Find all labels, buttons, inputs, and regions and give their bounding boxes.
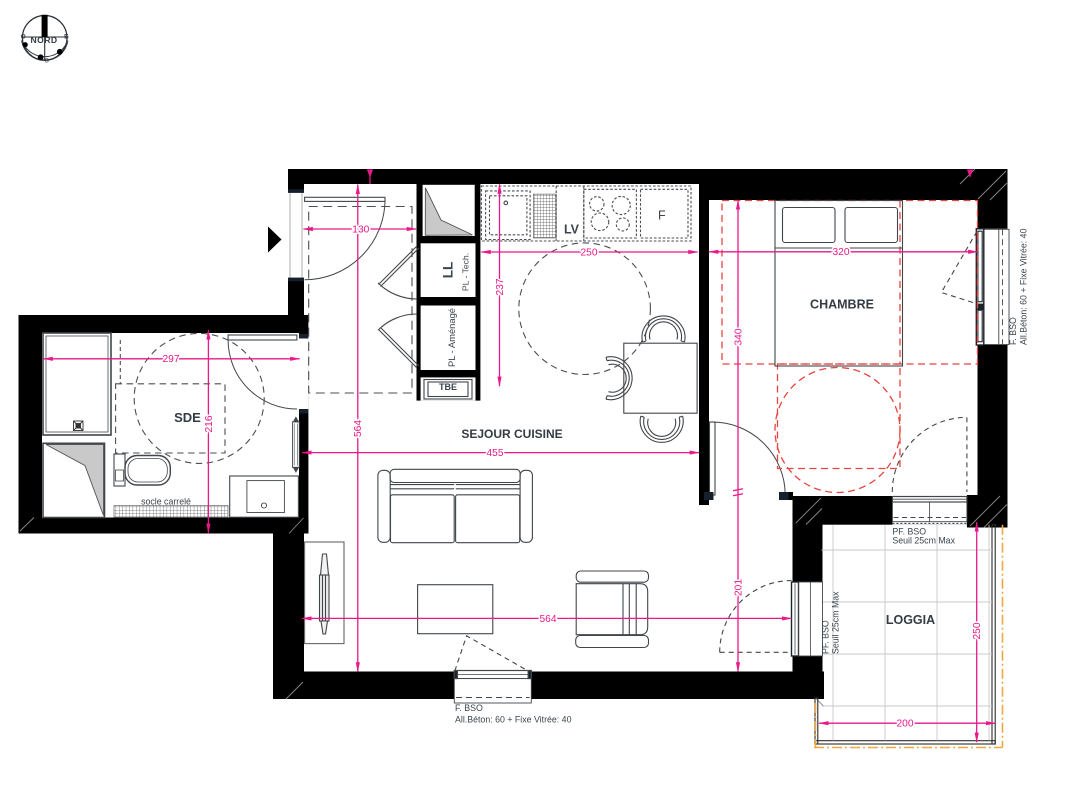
svg-text:250: 250 xyxy=(972,622,983,639)
svg-text:LL: LL xyxy=(441,262,456,279)
svg-text:S: S xyxy=(45,58,50,65)
svg-text:237: 237 xyxy=(495,278,506,295)
svg-text:564: 564 xyxy=(353,420,364,437)
svg-text:201: 201 xyxy=(733,579,744,596)
svg-text:340: 340 xyxy=(733,328,744,345)
svg-text:LV: LV xyxy=(564,223,580,237)
svg-text:O: O xyxy=(21,34,26,41)
svg-text:PF. BSO: PF. BSO xyxy=(821,620,831,654)
svg-text:Seuil 25cm Max: Seuil 25cm Max xyxy=(892,536,955,546)
svg-text:F. BSO: F. BSO xyxy=(1008,317,1018,345)
svg-text:320: 320 xyxy=(833,247,850,258)
svg-text:Seuil 25cm Max: Seuil 25cm Max xyxy=(831,591,841,654)
svg-text:PL - Aménagé: PL - Aménagé xyxy=(446,308,457,367)
svg-text:SDE: SDE xyxy=(174,410,201,425)
svg-text:250: 250 xyxy=(581,247,598,258)
svg-text:297: 297 xyxy=(163,354,180,365)
svg-text:E: E xyxy=(64,34,69,41)
svg-text:socle carrelé: socle carrelé xyxy=(141,497,191,507)
svg-text:All.Béton: 60 + Fixe Vitrée: 4: All.Béton: 60 + Fixe Vitrée: 40 xyxy=(455,715,572,725)
svg-text:F: F xyxy=(658,209,666,223)
svg-text:F. BSO: F. BSO xyxy=(455,703,483,713)
svg-text:130: 130 xyxy=(352,224,369,235)
svg-text:SEJOUR CUISINE: SEJOUR CUISINE xyxy=(461,427,562,441)
svg-text:All.Béton: 60 + Fixe Vitrée: 4: All.Béton: 60 + Fixe Vitrée: 40 xyxy=(1019,228,1029,345)
svg-text:NORD: NORD xyxy=(31,35,58,45)
svg-text:LOGGIA: LOGGIA xyxy=(886,613,935,627)
svg-text:TBE: TBE xyxy=(439,382,457,392)
svg-text:216: 216 xyxy=(204,415,215,432)
svg-text:564: 564 xyxy=(540,614,557,625)
svg-text:200: 200 xyxy=(897,719,914,730)
svg-text:PL - Tech.: PL - Tech. xyxy=(461,253,471,291)
svg-text:455: 455 xyxy=(487,448,504,459)
svg-text:CHAMBRE: CHAMBRE xyxy=(810,298,874,312)
